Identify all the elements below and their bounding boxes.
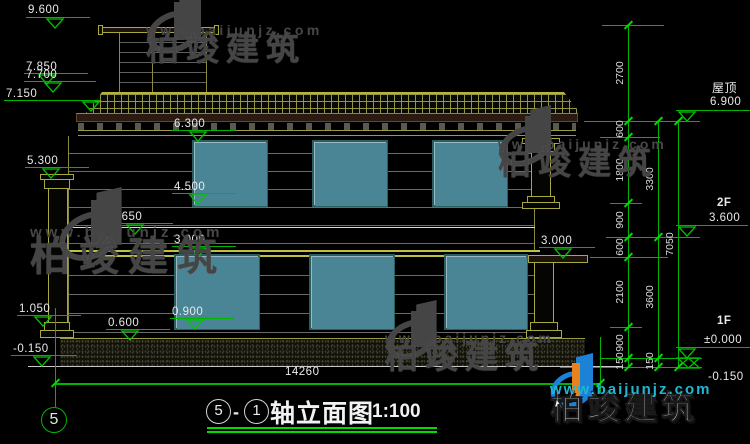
overall-dim-line [55,383,600,385]
level-triangle-icon [678,226,696,237]
level-7150: 7.150 [6,88,37,100]
level-minus-0150: -0.150 [13,343,49,355]
cad-elevation-canvas: 9.600 7.850 7.700 7.150 5.300 3.650 1.05… [0,0,750,444]
overall-dim-value: 14260 [285,366,319,378]
level-9600: 9.600 [28,4,59,16]
floor-1f-value: ±0.000 [704,334,742,346]
window-1f-3 [444,254,528,330]
level-triangle-icon [189,194,207,205]
dim-chain-line-1 [628,25,629,367]
level-triangle-icon [44,82,62,93]
level-triangle-icon [34,316,52,327]
title-axis-dash: - [233,402,240,423]
dim-value-2700: 2700 [614,61,626,84]
level-7700: 7.700 [26,69,57,81]
level-1050: 1.050 [19,303,50,315]
level-6300: 6.300 [174,118,205,130]
level-triangle-icon [121,330,139,341]
level-triangle-icon [82,101,100,112]
level-minus-0150-right: -0.150 [708,371,744,383]
window-2f-2 [312,140,388,207]
dim-extension-line-left [55,308,56,407]
dim-value-900b: 900 [614,334,626,352]
dim-extension-line [584,121,700,122]
dim-value-150b: 150 [644,352,656,370]
dim-value-3600: 3600 [644,285,656,308]
level-4500: 4.500 [174,181,205,193]
level-triangle-icon [42,168,60,179]
title-axis-bubble-end: 1 [244,399,269,424]
dim-value-150a: 150 [614,352,626,370]
dim-value-900a: 900 [614,211,626,229]
level-triangle-icon [189,131,207,142]
floor-2f-value: 3.600 [709,212,740,224]
window-2f-3 [432,140,508,207]
level-triangle-icon [33,356,51,367]
roof-level-value: 6.900 [710,96,741,108]
dim-extension-line [602,25,664,26]
right-lower-pilaster-shaft [534,262,554,323]
title-underline-bottom [207,431,437,433]
left-pilaster-base-lower [40,330,74,338]
level-triangle-icon [554,248,572,259]
watermark-url: www.baijunjz.com [30,224,223,241]
penthouse-slab-endcap-left [98,25,103,35]
floor-1f-label: 1F [717,315,731,327]
watermark-url: www.baijunjz.com [498,136,667,152]
watermark-url: www.baijunjz.com [550,381,711,398]
drawing-scale: 1:100 [372,401,421,423]
window-1f-2 [309,254,395,330]
level-0600: 0.600 [108,317,139,329]
right-upper-pilaster-ledge-lower [522,202,560,209]
watermark-url: www.baijunjz.com [385,330,554,346]
watermark-url: www.baijunjz.com [146,22,323,38]
drawing-title: 轴立面图 [270,394,374,430]
title-axis-bubble-start: 5 [206,399,231,424]
level-triangle-icon [186,319,204,330]
floor-2f-label: 2F [717,197,731,209]
level-triangle-icon [46,18,64,29]
level-0900: 0.900 [172,306,203,318]
dim-value-600b: 600 [614,238,626,256]
title-underline-top [207,427,437,429]
roof-level-label: 屋顶 [712,79,737,96]
axis-bubble-5: 5 [41,407,67,433]
dim-chain-line-2 [658,121,659,367]
dim-value-7050: 7050 [664,232,676,255]
dim-value-2100: 2100 [614,280,626,303]
level-3000-right: 3.000 [541,235,572,247]
level-5300: 5.300 [27,155,58,167]
dim-chain-line-3 [678,121,679,367]
